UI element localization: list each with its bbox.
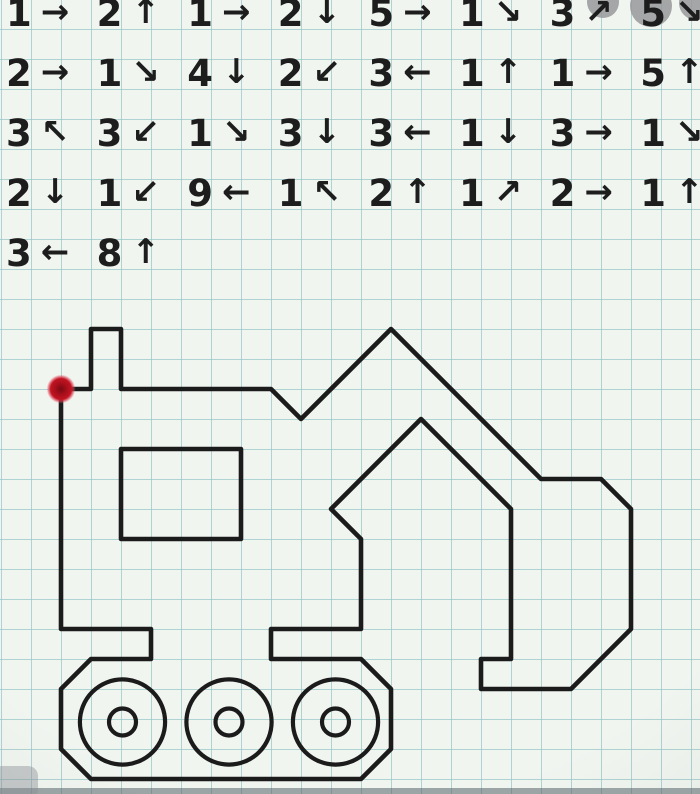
instruction-item: 1↘ <box>640 104 700 164</box>
step-count: 9 <box>187 164 213 224</box>
direction-arrow-left-icon: ← <box>41 222 70 282</box>
instruction-item: 4↓ <box>187 44 250 104</box>
direction-arrow-left-icon: ← <box>403 102 432 162</box>
step-count: 1 <box>187 0 213 44</box>
step-count: 3 <box>550 104 576 164</box>
direction-arrow-down-icon: ↓ <box>41 162 70 222</box>
direction-arrow-left-icon: ← <box>403 42 432 102</box>
instruction-row: 2↓1↙9←1↖2↑1↗2→1↑ <box>0 164 700 224</box>
instruction-row: 2→1↘4↓2↙3←1↑1→5↑ <box>0 44 700 104</box>
instruction-item: 1→ <box>6 0 69 44</box>
instruction-item: 1↘ <box>97 44 160 104</box>
instruction-item: 1→ <box>187 0 250 44</box>
direction-arrow-down-icon: ↓ <box>494 102 523 162</box>
direction-arrow-up-right-icon: ↗ <box>584 0 613 42</box>
step-count: 2 <box>6 44 32 104</box>
instruction-item: 2↑ <box>97 0 160 44</box>
instruction-grid: 1→2↑1→2↓5→1↘3↗5↘2→1↘4↓2↙3←1↑1→5↑3↖3↙1↘3↓… <box>0 0 700 794</box>
direction-arrow-down-icon: ↓ <box>313 102 342 162</box>
instruction-item: 1↘ <box>459 0 522 44</box>
instruction-item: 5↘ <box>640 0 700 44</box>
direction-arrow-up-right-icon: ↗ <box>494 162 523 222</box>
step-count: 4 <box>187 44 213 104</box>
instruction-item: 1↑ <box>459 44 522 104</box>
direction-arrow-up-left-icon: ↖ <box>313 162 342 222</box>
direction-arrow-down-right-icon: ↘ <box>131 42 160 102</box>
step-count: 3 <box>550 0 576 44</box>
direction-arrow-right-icon: → <box>403 0 432 42</box>
direction-arrow-down-right-icon: ↘ <box>675 0 700 42</box>
step-count: 2 <box>550 164 576 224</box>
instruction-item: 2↓ <box>278 0 341 44</box>
step-count: 1 <box>459 104 485 164</box>
step-count: 3 <box>6 104 32 164</box>
instruction-item: 2→ <box>550 164 613 224</box>
instruction-item: 1↖ <box>278 164 341 224</box>
instruction-item: 3↗ <box>550 0 613 44</box>
step-count: 3 <box>368 44 394 104</box>
instruction-item: 3← <box>368 44 431 104</box>
step-count: 8 <box>97 224 123 284</box>
direction-arrow-down-left-icon: ↙ <box>131 162 160 222</box>
step-count: 2 <box>278 0 304 44</box>
instruction-item: 8↑ <box>97 224 160 284</box>
instruction-item: 1↙ <box>97 164 160 224</box>
step-count: 3 <box>368 104 394 164</box>
direction-arrow-up-icon: ↑ <box>675 162 700 222</box>
instruction-item: 3↓ <box>278 104 341 164</box>
direction-arrow-down-right-icon: ↘ <box>675 102 700 162</box>
step-count: 2 <box>278 44 304 104</box>
step-count: 1 <box>187 104 213 164</box>
direction-arrow-up-icon: ↑ <box>675 42 700 102</box>
worksheet-photo: 1→2↑1→2↓5→1↘3↗5↘2→1↘4↓2↙3←1↑1→5↑3↖3↙1↘3↓… <box>0 0 700 794</box>
instruction-item: 3← <box>6 224 69 284</box>
instruction-item: 1→ <box>550 44 613 104</box>
direction-arrow-left-icon: ← <box>222 162 251 222</box>
instruction-item: 5→ <box>368 0 431 44</box>
step-count: 5 <box>640 44 666 104</box>
direction-arrow-down-icon: ↓ <box>313 0 342 42</box>
instruction-item: 3↖ <box>6 104 69 164</box>
step-count: 1 <box>550 44 576 104</box>
step-count: 1 <box>278 164 304 224</box>
direction-arrow-down-left-icon: ↙ <box>313 42 342 102</box>
direction-arrow-right-icon: → <box>584 162 613 222</box>
instruction-item: 1↘ <box>187 104 250 164</box>
instruction-item: 2↙ <box>278 44 341 104</box>
step-count: 1 <box>459 164 485 224</box>
direction-arrow-right-icon: → <box>222 0 251 42</box>
step-count: 5 <box>640 0 666 44</box>
instruction-item: 3↙ <box>97 104 160 164</box>
step-count: 3 <box>6 224 32 284</box>
step-count: 1 <box>459 44 485 104</box>
instruction-item: 1↑ <box>640 164 700 224</box>
step-count: 5 <box>368 0 394 44</box>
direction-arrow-down-left-icon: ↙ <box>131 102 160 162</box>
instruction-item: 3← <box>368 104 431 164</box>
step-count: 2 <box>97 0 123 44</box>
step-count: 2 <box>6 164 32 224</box>
direction-arrow-right-icon: → <box>584 102 613 162</box>
direction-arrow-up-icon: ↑ <box>131 0 160 42</box>
step-count: 2 <box>368 164 394 224</box>
direction-arrow-up-icon: ↑ <box>403 162 432 222</box>
step-count: 1 <box>6 0 32 44</box>
instruction-item: 1↗ <box>459 164 522 224</box>
step-count: 1 <box>97 164 123 224</box>
step-count: 1 <box>640 104 666 164</box>
direction-arrow-down-right-icon: ↘ <box>494 0 523 42</box>
direction-arrow-right-icon: → <box>41 0 70 42</box>
step-count: 3 <box>278 104 304 164</box>
instruction-item: 5↑ <box>640 44 700 104</box>
instruction-item: 2↓ <box>6 164 69 224</box>
direction-arrow-up-icon: ↑ <box>131 222 160 282</box>
instruction-item: 2↑ <box>368 164 431 224</box>
instruction-row: 3↖3↙1↘3↓3←1↓3→1↘ <box>0 104 700 164</box>
direction-arrow-right-icon: → <box>584 42 613 102</box>
step-count: 1 <box>97 44 123 104</box>
direction-arrow-down-icon: ↓ <box>222 42 251 102</box>
step-count: 1 <box>459 0 485 44</box>
instruction-item: 9← <box>187 164 250 224</box>
step-count: 3 <box>97 104 123 164</box>
instruction-item: 1↓ <box>459 104 522 164</box>
instruction-row: 1→2↑1→2↓5→1↘3↗5↘ <box>0 0 700 44</box>
direction-arrow-right-icon: → <box>41 42 70 102</box>
direction-arrow-up-icon: ↑ <box>494 42 523 102</box>
direction-arrow-up-left-icon: ↖ <box>41 102 70 162</box>
direction-arrow-down-right-icon: ↘ <box>222 102 251 162</box>
instruction-item: 2→ <box>6 44 69 104</box>
instruction-item: 3→ <box>550 104 613 164</box>
instruction-row: 3←8↑ <box>0 224 700 284</box>
step-count: 1 <box>640 164 666 224</box>
